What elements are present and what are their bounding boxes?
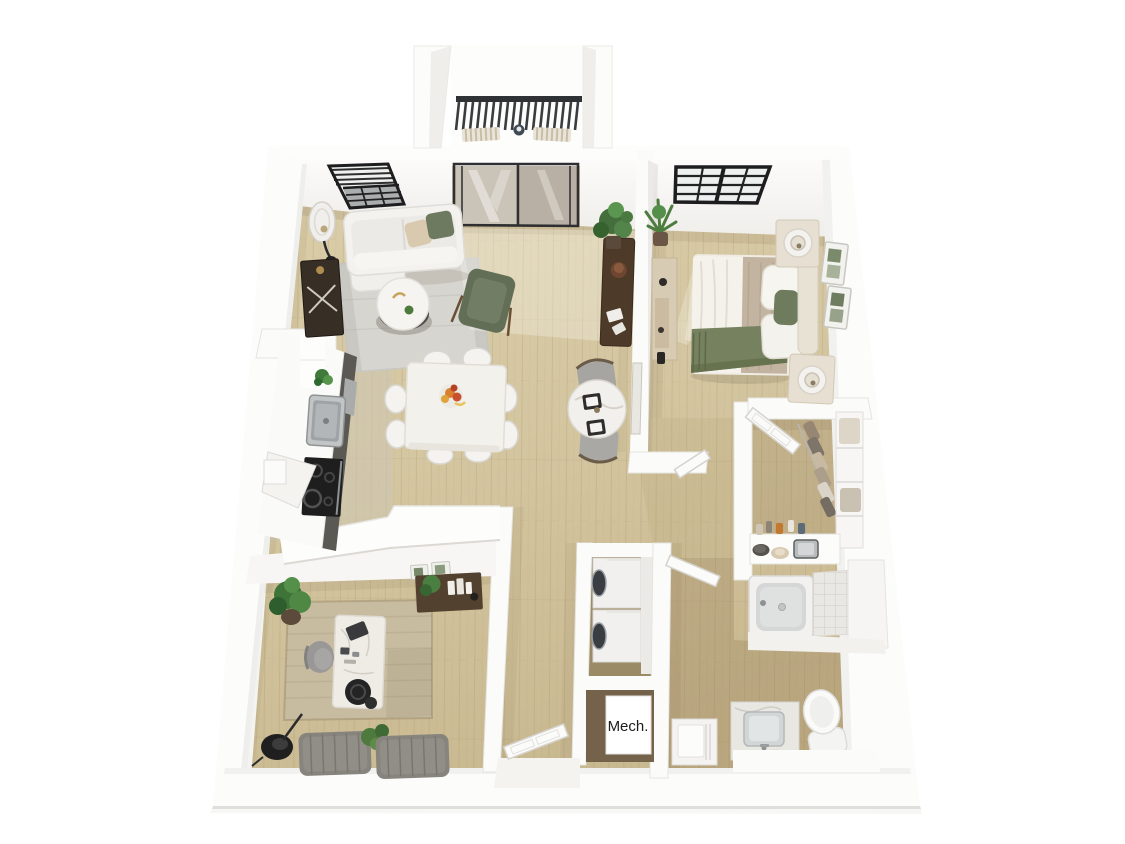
svg-text:Mech.: Mech.: [608, 718, 649, 735]
